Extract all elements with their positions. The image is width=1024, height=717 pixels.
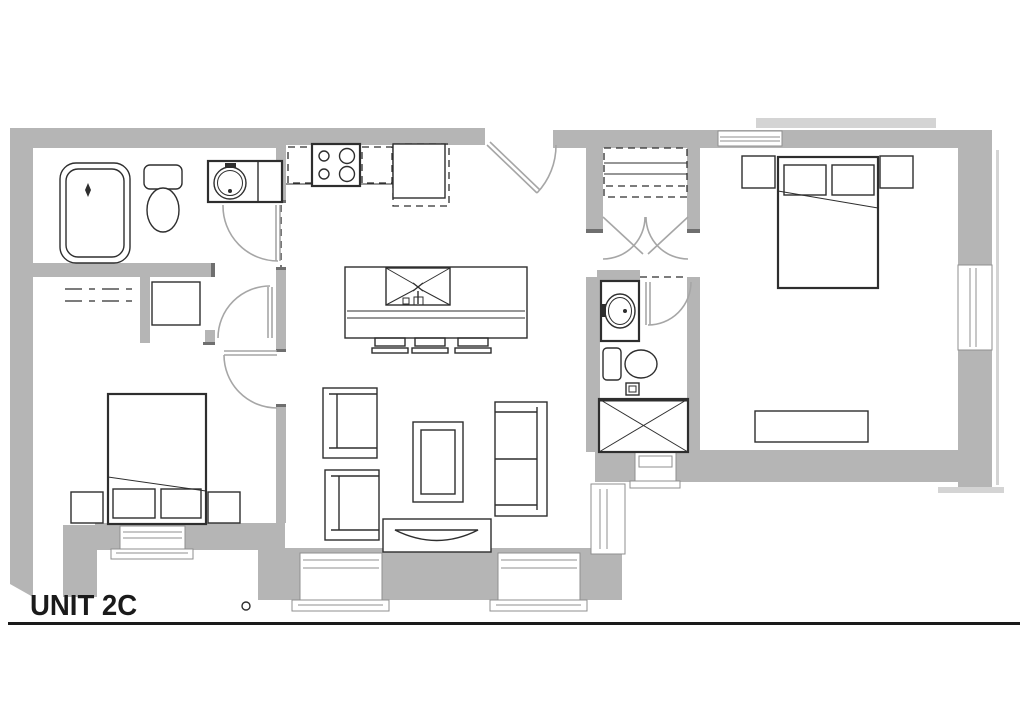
floor-plan-drawing (0, 0, 1024, 717)
living-room (323, 388, 547, 552)
bathroom2-bottom-window (630, 451, 680, 488)
bar-stools (372, 338, 491, 353)
nightstand (880, 156, 913, 188)
floor-plan: UNIT 2C (0, 0, 1024, 717)
faucet-icon (600, 304, 606, 317)
bed2 (778, 157, 878, 288)
living-window-left (292, 553, 389, 611)
bathroom1-door (223, 205, 280, 261)
armchair (323, 388, 377, 458)
closet-double-doors (603, 217, 688, 259)
kitchen-island (345, 267, 527, 338)
bed1 (108, 394, 206, 524)
nightstand (208, 492, 240, 523)
bathtub (60, 163, 130, 263)
pillow (784, 165, 826, 195)
entry-door (487, 142, 556, 193)
hall-door (218, 286, 272, 338)
dresser (755, 411, 868, 442)
bedroom2-right-window (958, 265, 992, 350)
bedroom1-window (111, 526, 193, 559)
vanity2-sink (600, 281, 639, 341)
sofa (495, 402, 547, 516)
upper-cabinet-dash (362, 147, 392, 183)
vanity1-sink (208, 161, 282, 202)
bathroom2 (599, 281, 688, 452)
faucet-icon (225, 163, 236, 168)
title-underline (8, 622, 1020, 625)
stove (312, 144, 360, 186)
upper-cabinet-dash (288, 147, 312, 183)
toilet1 (144, 165, 182, 232)
nightstand (71, 492, 103, 523)
pillow (832, 165, 874, 195)
bedroom1-door (224, 351, 277, 408)
pillow (161, 489, 201, 518)
plan-dot (242, 602, 250, 610)
coffee-table (413, 422, 463, 502)
nightstand (742, 156, 775, 188)
bathroom2-door (646, 282, 691, 325)
toilet2 (603, 348, 657, 395)
bedroom1 (71, 282, 240, 524)
bedroom2 (742, 156, 913, 442)
washer-dryer (152, 282, 200, 325)
living-window-right (490, 553, 587, 611)
shower (599, 399, 688, 452)
tv-console (383, 519, 491, 552)
refrigerator (393, 144, 445, 198)
bathroom1 (60, 161, 282, 263)
pillow (113, 489, 155, 518)
bedroom2-top-window (718, 131, 782, 146)
armchair (325, 470, 379, 540)
kitchen (286, 144, 527, 353)
step-window (591, 484, 625, 554)
unit-title: UNIT 2C (30, 590, 137, 623)
hall-closet (604, 148, 687, 197)
